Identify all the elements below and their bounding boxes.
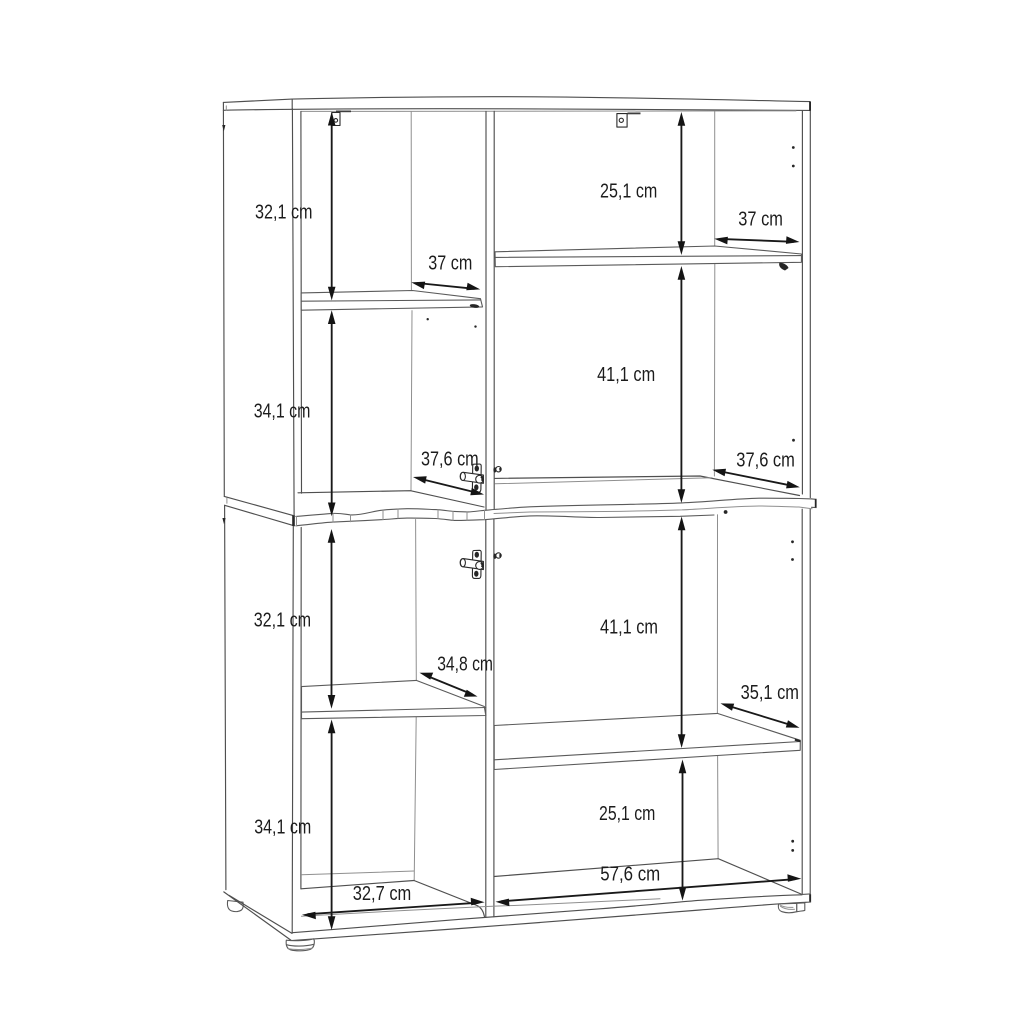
svg-text:37 cm: 37 cm: [428, 253, 472, 275]
svg-text:35,1 cm: 35,1 cm: [741, 682, 799, 704]
svg-text:34,1 cm: 34,1 cm: [254, 401, 311, 423]
svg-text:57,6 cm: 57,6 cm: [600, 863, 660, 885]
svg-text:37 cm: 37 cm: [738, 209, 783, 231]
svg-text:32,1 cm: 32,1 cm: [255, 201, 313, 223]
svg-text:32,7 cm: 32,7 cm: [353, 883, 412, 905]
svg-text:25,1 cm: 25,1 cm: [600, 181, 657, 203]
svg-text:32,1 cm: 32,1 cm: [254, 609, 311, 631]
svg-text:41,1 cm: 41,1 cm: [600, 616, 658, 638]
svg-text:37,6 cm: 37,6 cm: [736, 449, 795, 471]
svg-text:34,1 cm: 34,1 cm: [254, 816, 311, 838]
svg-text:37,6 cm: 37,6 cm: [421, 449, 479, 471]
svg-text:34,8 cm: 34,8 cm: [437, 653, 493, 675]
svg-text:25,1 cm: 25,1 cm: [599, 803, 655, 825]
svg-text:41,1 cm: 41,1 cm: [597, 364, 655, 386]
